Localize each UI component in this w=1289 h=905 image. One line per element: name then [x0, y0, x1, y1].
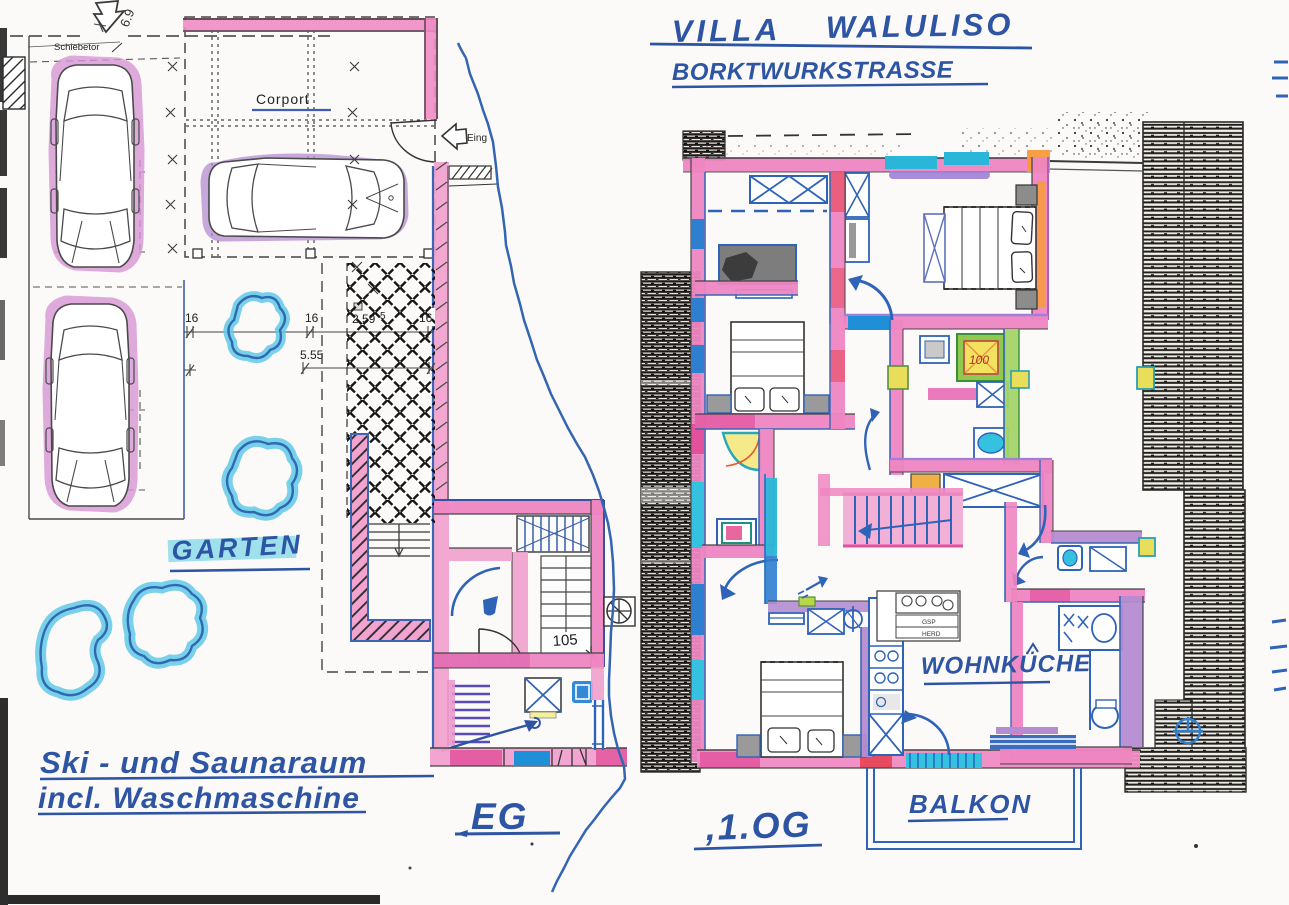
svg-text:incl. Waschmaschine: incl. Waschmaschine	[38, 782, 360, 815]
svg-text:Ski - und Saunaraum: Ski - und Saunaraum	[40, 745, 367, 780]
svg-text:,1.OG: ,1.OG	[704, 803, 812, 848]
svg-text:Schiebetor: Schiebetor	[54, 42, 99, 53]
svg-text:BALKON: BALKON	[909, 789, 1032, 819]
svg-text:BORKTWURKSTRASSE: BORKTWURKSTRASSE	[672, 57, 954, 86]
svg-text:105: 105	[552, 631, 578, 650]
svg-text:GSP: GSP	[922, 619, 936, 626]
svg-text:HERD: HERD	[922, 631, 941, 638]
svg-text:100: 100	[969, 353, 989, 367]
svg-text:16: 16	[305, 311, 319, 325]
svg-text:Eing: Eing	[467, 133, 487, 144]
svg-text:16: 16	[185, 311, 199, 325]
svg-text:Corport: Corport	[256, 91, 310, 107]
svg-text:5.55: 5.55	[300, 348, 324, 362]
svg-text:WOHNKÜCHE: WOHNKÜCHE	[921, 650, 1092, 680]
svg-text:WALULISO: WALULISO	[826, 7, 1014, 45]
svg-text:EG: EG	[471, 796, 528, 837]
